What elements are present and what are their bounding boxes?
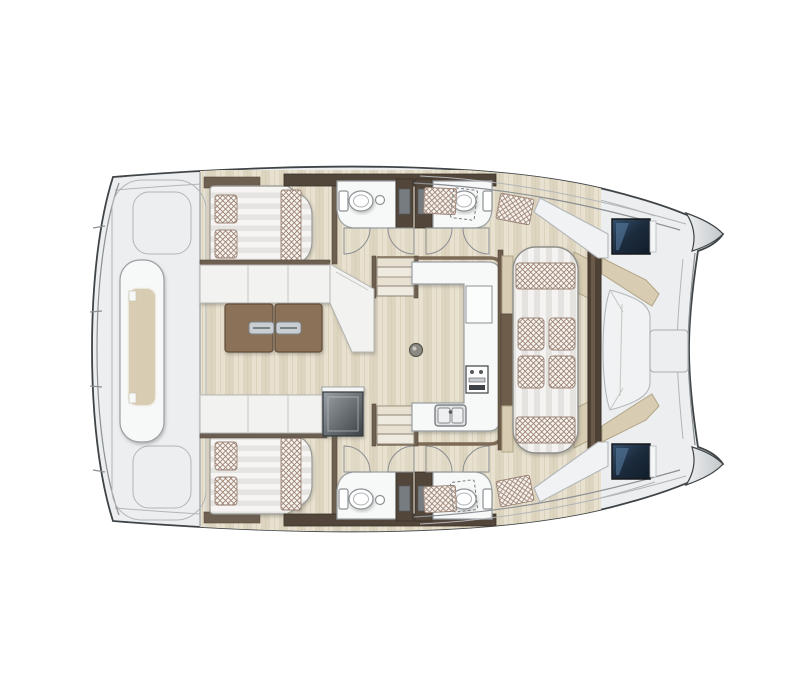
- lounge-bolster: [516, 263, 575, 289]
- companionway-stairs: [372, 256, 418, 298]
- pillow: [215, 195, 237, 223]
- tread-pad: [423, 485, 456, 513]
- pillow: [215, 442, 237, 470]
- bed-runner: [281, 438, 301, 510]
- bed-runner: [281, 190, 301, 262]
- salon-sofa: [200, 395, 322, 433]
- table-mount-highlight: [413, 347, 417, 351]
- companionway-stairs: [372, 404, 418, 446]
- cooler-box: [322, 387, 364, 436]
- sofa-back-trim: [200, 260, 330, 265]
- scatter-cushion: [518, 356, 544, 388]
- sun-lounger: [120, 260, 164, 442]
- floor-plan: [0, 0, 800, 700]
- stove-control-panel: [466, 366, 488, 393]
- forward-bulkhead-trim: [591, 252, 595, 447]
- double-sink: [435, 405, 466, 426]
- toilet: [339, 489, 373, 509]
- washbasin: [376, 196, 385, 205]
- toilet: [339, 191, 373, 211]
- cockpit-footwell: [650, 330, 688, 372]
- deck-hatch-window: [612, 219, 656, 254]
- tread-pad: [423, 187, 456, 215]
- scatter-cushion: [549, 356, 575, 388]
- washbasin: [376, 496, 385, 505]
- pillow: [215, 477, 237, 505]
- deck-hatch-window: [612, 444, 656, 479]
- scatter-cushion: [518, 318, 544, 350]
- salon-table: [225, 304, 322, 352]
- sofa-back-trim: [200, 433, 327, 438]
- galley-worktop: [466, 286, 492, 323]
- cabin-divider-wall: [332, 180, 337, 264]
- scatter-cushion: [549, 318, 575, 350]
- floor-plan-canvas: [0, 0, 800, 700]
- pillow: [215, 230, 237, 258]
- toilet: [452, 191, 492, 211]
- toilet: [452, 489, 492, 509]
- table-mount: [410, 344, 423, 357]
- cabin-divider-wall: [332, 436, 337, 520]
- lounge-backrest: [501, 314, 514, 406]
- lounge-bolster: [516, 417, 575, 443]
- faucet: [449, 410, 453, 414]
